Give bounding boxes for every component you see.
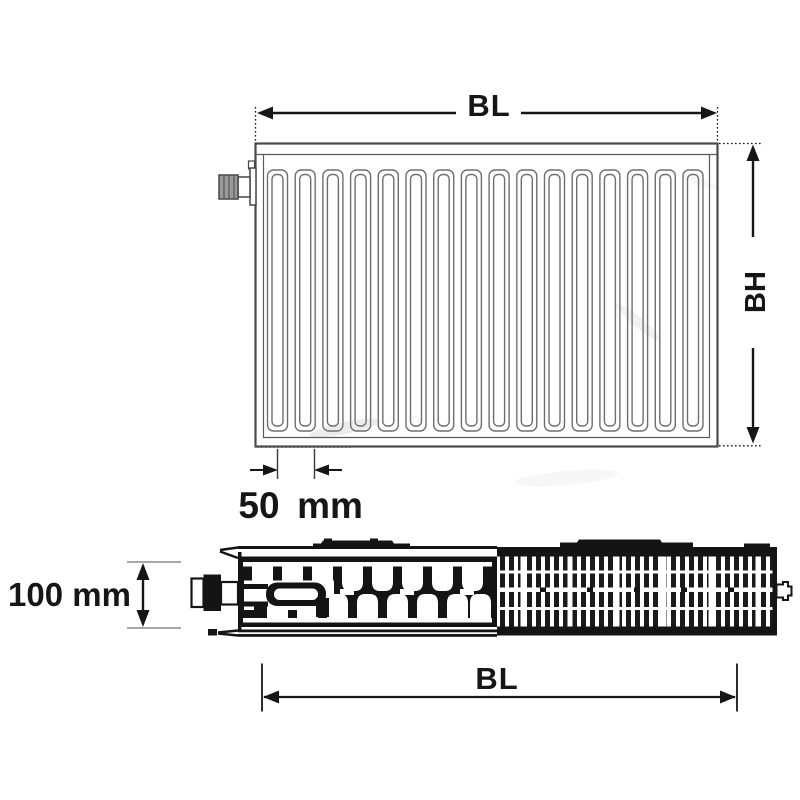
spacing-unit-label: mm [297,485,363,526]
section-convector [497,540,777,636]
technical-drawing-canvas: BL BH 50 mm [0,0,800,800]
mounting-tab [744,544,770,548]
bh-label: BH [740,271,772,313]
spacing-value-label: 50 [238,485,279,526]
bl-top-label: BL [467,88,510,123]
depth-label: 100 mm [8,576,131,613]
bl-bottom-label: BL [475,661,518,696]
background [0,0,800,800]
radiator-dimension-diagram: BL BH 50 mm [0,0,800,800]
